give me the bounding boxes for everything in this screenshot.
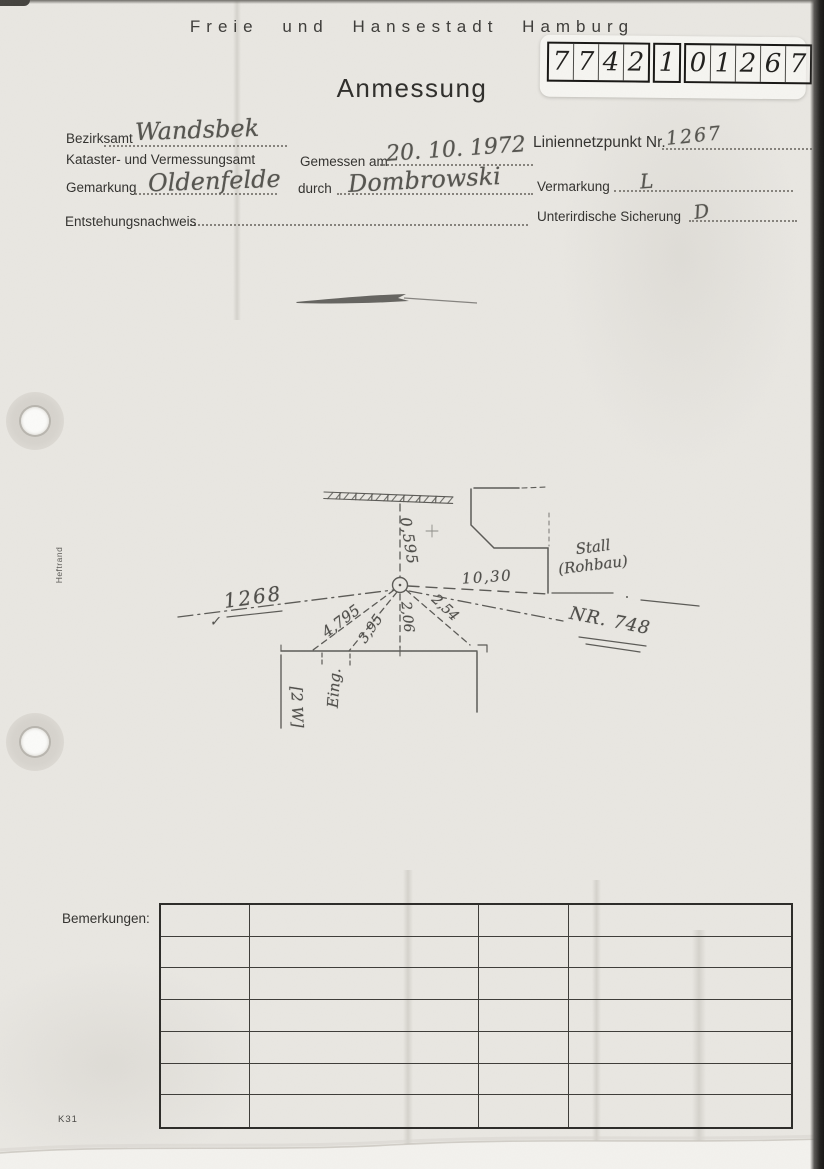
stamp-group: 1: [653, 43, 681, 83]
stamp-group: 7 7 4 2: [547, 42, 650, 83]
field-value-gemarkung: Oldenfelde: [148, 165, 282, 198]
field-label-vermarkung: Vermarkung: [537, 179, 610, 194]
remarks-cell: [479, 968, 569, 1000]
remarks-cell: [161, 905, 250, 937]
scanned-survey-form: Heftrand Freie und Hansestadt Hamburg An…: [0, 0, 824, 1169]
stamp-digit: 2: [736, 46, 761, 82]
punch-hole: [6, 713, 64, 771]
remarks-cell: [479, 1000, 569, 1032]
stamp-digit: 1: [655, 45, 679, 81]
scan-top-edge: [0, 0, 824, 4]
remarks-cell: [250, 1095, 479, 1127]
field-value-unterirdische-sicherung: D: [693, 200, 711, 224]
remarks-cell: [161, 937, 250, 969]
stamp-digit: 7: [786, 46, 810, 82]
remarks-table: [159, 903, 793, 1129]
remarks-cell: [161, 1095, 250, 1127]
remarks-cell: [569, 1032, 791, 1064]
file-number-stamp: 7 7 4 2 1 0 1 2 6 7: [547, 42, 812, 85]
wall-hatch: [324, 492, 453, 503]
remarks-cell: [250, 1000, 479, 1032]
stamp-group: 0 1 2 6 7: [684, 43, 812, 84]
scan-right-edge: [810, 0, 824, 1169]
remarks-cell: [250, 968, 479, 1000]
entrance-label: Eing.: [324, 668, 345, 709]
remarks-cell: [161, 1032, 250, 1064]
stamp-digit: 2: [624, 44, 648, 80]
field-rule: [190, 224, 528, 226]
punch-hole-center: [21, 407, 49, 435]
stamp-digit: 7: [574, 44, 599, 80]
stamp-digit: 4: [599, 44, 624, 80]
scan-bottom-edge: [0, 1125, 824, 1169]
label-underline-nr748: [579, 637, 646, 652]
dim-label-1030: 10,30: [461, 566, 513, 587]
house-outline: [281, 645, 487, 728]
field-label-entstehungsnachweis: Entstehungsnachweis: [65, 214, 196, 229]
pencil-arrow-mark: [296, 294, 477, 303]
field-label-gemarkung: Gemarkung: [66, 180, 137, 195]
form-code: K31: [58, 1114, 78, 1125]
margin-label: Heftrand: [54, 547, 64, 584]
page-title: Freie und Hansestadt Hamburg: [12, 17, 812, 37]
survey-sketch: [150, 275, 730, 765]
stamp-digit: 0: [686, 45, 711, 81]
field-value-bezirksamt: Wandsbek: [135, 114, 260, 146]
remarks-cell: [479, 1095, 569, 1127]
field-label-liniennetzpunkt: Liniennetzpunkt Nr.: [533, 134, 666, 152]
remarks-cell: [569, 1064, 791, 1096]
field-label-bezirksamt: Bezirksamt: [66, 131, 133, 146]
remarks-cell: [250, 1032, 479, 1064]
remarks-label: Bemerkungen:: [62, 911, 150, 926]
punch-hole-center: [21, 728, 49, 756]
field-label-unterirdische-sicherung: Unterirdische Sicherung: [537, 209, 681, 224]
remarks-cell: [479, 937, 569, 969]
punch-hole: [6, 392, 64, 450]
field-value-vermarkung: L: [639, 169, 654, 194]
remarks-cell: [479, 1064, 569, 1096]
remarks-cell: [569, 937, 791, 969]
remarks-cell: [569, 1000, 791, 1032]
field-label-gemessen-am: Gemessen am: [300, 154, 388, 169]
measure-line-1030: [408, 586, 548, 594]
stamp-digit: 7: [549, 44, 574, 80]
remarks-cell: [161, 1000, 250, 1032]
field-label-kataster: Kataster- und Vermessungsamt: [66, 152, 255, 167]
field-rule: [662, 148, 812, 150]
remarks-cell: [479, 1032, 569, 1064]
remarks-cell: [250, 1064, 479, 1096]
remarks-cell: [569, 1095, 791, 1127]
field-label-durch: durch: [298, 181, 332, 196]
remarks-cell: [161, 1064, 250, 1096]
remarks-cell: [250, 937, 479, 969]
stamp-digit: 1: [711, 45, 736, 81]
remarks-cell: [161, 968, 250, 1000]
remarks-cell: [479, 905, 569, 937]
remarks-cell: [569, 905, 791, 937]
stamp-digit: 6: [761, 46, 786, 82]
remarks-cell: [250, 905, 479, 937]
label-underline-1268: [227, 611, 282, 617]
survey-point-dot: [399, 584, 402, 587]
scan-corner-shadow: [0, 0, 30, 6]
field-value-gemessen-am: 20. 10. 1972: [385, 132, 526, 167]
dim-label-206: 2,06: [397, 601, 416, 634]
plus-mark: [426, 525, 438, 537]
check-mark: ✓: [209, 614, 221, 630]
remarks-cell: [569, 968, 791, 1000]
storeys-label: [2 W]: [287, 686, 306, 728]
